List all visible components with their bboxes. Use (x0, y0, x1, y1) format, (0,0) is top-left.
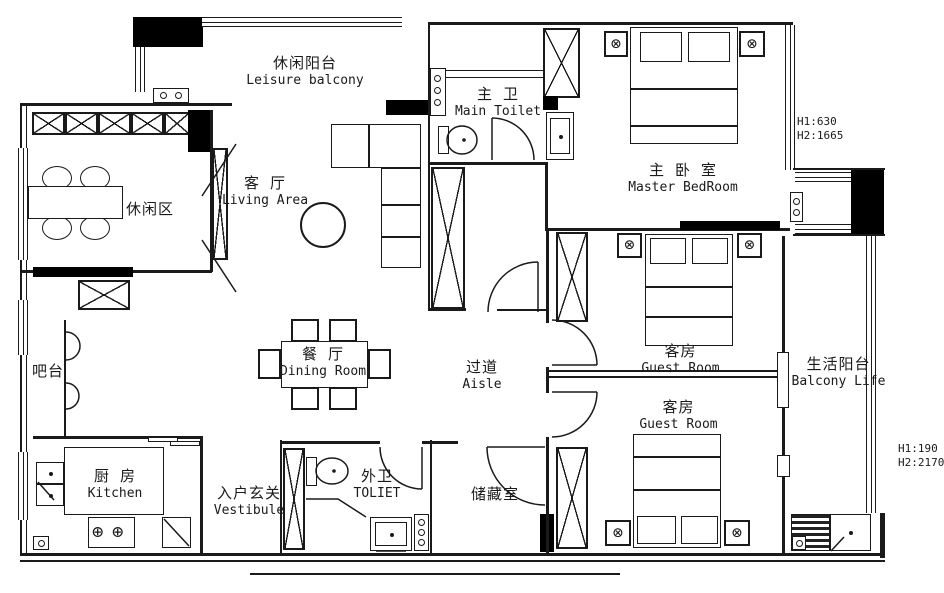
label-zh: 主 卫 (428, 83, 568, 104)
dining-chair (329, 319, 357, 342)
label-en: TOLIET (338, 486, 416, 501)
label-en: Guest Room (618, 361, 743, 376)
label-en: Main Toilet (428, 104, 568, 119)
nightstand-lamp-icon: ⊗ (724, 520, 750, 546)
label-zh: 客房 (618, 340, 743, 361)
sofa (381, 168, 421, 268)
room-label-leisure-area: 休闲区 (108, 198, 192, 219)
wall-block (33, 267, 133, 277)
shelf-column (414, 514, 429, 551)
label-en: Vestibule (203, 503, 295, 518)
pillow (688, 32, 730, 62)
pillow (681, 516, 718, 544)
shelf-dot (418, 529, 425, 536)
stove-burner-icon: ⊕ (112, 523, 123, 542)
cabinet (32, 112, 65, 135)
washbasin-inner (375, 522, 407, 546)
label-zh: 储藏室 (462, 483, 528, 504)
room-label-guest-room-lower: 客房 Guest Room (616, 396, 741, 432)
label-en: Kitchen (76, 486, 154, 501)
window (795, 172, 851, 182)
dining-chair (291, 387, 319, 410)
nightstand-lamp-icon: ⊗ (604, 31, 628, 57)
fixture-box (792, 536, 806, 550)
room-label-living-area: 客 厅 Living Area (205, 172, 325, 208)
label-en: Living Area (205, 193, 325, 208)
window (785, 25, 795, 170)
room-label-kitchen: 厨 房 Kitchen (76, 465, 154, 501)
wall (20, 553, 885, 556)
nightstand-lamp-icon: ⊗ (737, 233, 762, 258)
annotation-balcony-window: H1:190 H2:2170 (898, 442, 944, 471)
window (18, 148, 28, 260)
bed-line (633, 456, 721, 458)
wall (782, 236, 785, 352)
room-label-master-bedroom: 主 卧 室 Master BedRoom (608, 159, 758, 195)
sofa-line (381, 236, 421, 238)
wall (545, 162, 548, 230)
label-zh: 餐 厅 (262, 343, 384, 364)
window (18, 300, 28, 355)
room-label-storage: 储藏室 (462, 483, 528, 504)
pillow (692, 238, 728, 264)
fixture-dot (793, 209, 800, 216)
column-dot (434, 75, 441, 82)
planter-dot (160, 92, 167, 99)
washbasin-inner (550, 118, 570, 154)
wall-stub (777, 455, 790, 477)
label-en: Leisure balcony (225, 73, 385, 88)
nightstand-lamp-icon: ⊗ (739, 31, 765, 57)
wardrobe (431, 167, 465, 309)
balcony-rail-window (202, 17, 402, 27)
shelf-dot (418, 539, 425, 546)
window (135, 47, 145, 92)
cabinet (131, 112, 164, 135)
fixture-dot (796, 540, 803, 547)
sink-drain (49, 494, 53, 498)
nightstand-lamp-icon: ⊗ (605, 520, 631, 546)
label-zh: 吧台 (28, 360, 68, 381)
wall (20, 560, 885, 562)
basin-drain (559, 135, 563, 139)
label-zh: 入户玄关 (203, 482, 295, 503)
window (18, 452, 28, 520)
label-zh: 休闲区 (108, 198, 192, 219)
wall (546, 228, 549, 323)
toilet-tank (306, 457, 317, 486)
wall-block (680, 221, 780, 230)
shelf-line (446, 77, 543, 78)
room-label-aisle: 过道 Aisle (432, 356, 532, 392)
wall (428, 162, 547, 165)
dining-chair (329, 387, 357, 410)
planter-box (153, 88, 189, 103)
annotation-line: H1:190 (898, 442, 944, 456)
label-zh: 客房 (616, 396, 741, 417)
shelf-dot (418, 519, 425, 526)
wall (880, 513, 885, 558)
wall (546, 367, 549, 393)
chair (42, 216, 72, 240)
wall (428, 308, 466, 311)
stove-burner-icon: ⊕ (92, 523, 103, 542)
cabinet (65, 112, 98, 135)
wall-block (851, 170, 884, 235)
toilet-tank (438, 126, 449, 154)
wall-block (188, 110, 212, 152)
kitchen-sink (36, 484, 64, 506)
laundry-sink (830, 514, 871, 551)
label-en: Dining Room (262, 364, 384, 379)
folding-door (162, 517, 191, 548)
fixture-dot (793, 198, 800, 205)
room-label-guest-room-upper: 客房 Guest Room (618, 340, 743, 376)
wall (549, 376, 780, 378)
room-label-balcony-life: 生活阳台 Balcony Life (786, 353, 891, 389)
label-en: Balcony Life (786, 374, 891, 389)
annotation-line: H2:1665 (797, 129, 843, 143)
wall (497, 309, 546, 311)
room-label-main-toilet: 主 卫 Main Toilet (428, 83, 568, 119)
chair (80, 216, 110, 240)
cabinet (164, 112, 190, 135)
label-zh: 主 卧 室 (608, 159, 758, 180)
wardrobe (556, 447, 588, 549)
round-table (300, 202, 346, 248)
room-label-bar: 吧台 (28, 360, 68, 381)
fixture-dot (38, 540, 45, 547)
kitchen-sink (36, 462, 64, 484)
wall (782, 477, 785, 555)
label-zh: 过道 (432, 356, 532, 377)
wall (546, 437, 549, 555)
wall (430, 440, 432, 555)
sofa-line (381, 204, 421, 206)
bed-line (630, 125, 738, 127)
label-en: Master BedRoom (608, 180, 758, 195)
wall (545, 22, 793, 25)
window (795, 224, 851, 234)
pillow (650, 238, 686, 264)
annotation-line: H1:630 (797, 115, 843, 129)
sink-drain (49, 472, 53, 476)
wall (280, 441, 380, 444)
room-label-outer-toilet: 外卫 TOLIET (338, 465, 416, 501)
label-zh: 厨 房 (76, 465, 154, 486)
label-en: Aisle (432, 377, 532, 392)
planter-dot (175, 92, 182, 99)
sofa (331, 124, 421, 168)
label-zh: 生活阳台 (786, 353, 891, 374)
entry-step (250, 573, 620, 575)
pillow (637, 516, 676, 544)
sink-drain (849, 531, 853, 535)
annotation-master-window: H1:630 H2:1665 (797, 115, 843, 144)
room-label-leisure-balcony: 休闲阳台 Leisure balcony (225, 52, 385, 88)
wall-block (133, 17, 203, 47)
wall-block (386, 100, 428, 115)
label-zh: 客 厅 (205, 172, 325, 193)
cabinet (78, 280, 130, 310)
room-label-dining-room: 餐 厅 Dining Room (262, 343, 384, 379)
dining-chair (291, 319, 319, 342)
nightstand-lamp-icon: ⊗ (617, 233, 642, 258)
label-zh: 外卫 (338, 465, 416, 486)
floor-plan: ⊕ ⊕ ⊗ ⊗ (0, 0, 944, 593)
fixture-box (790, 192, 803, 222)
corner-fixture (33, 536, 49, 550)
label-zh: 休闲阳台 (225, 52, 385, 73)
bed-line (645, 316, 733, 318)
wall (432, 441, 458, 444)
room-label-vestibule: 入户玄关 Vestibule (203, 482, 295, 518)
sofa-line (368, 124, 370, 168)
wall (20, 103, 232, 106)
pillow (640, 32, 682, 62)
label-en: Guest Room (616, 417, 741, 432)
shelf-line (446, 70, 543, 71)
annotation-line: H2:2170 (898, 456, 944, 470)
bed-line (633, 489, 721, 491)
bed-line (645, 286, 733, 288)
bed-line (630, 88, 738, 90)
wall (428, 165, 430, 311)
cabinet (98, 112, 131, 135)
sliding-door (170, 441, 200, 446)
wardrobe (556, 232, 588, 322)
wall (782, 408, 785, 456)
wall (428, 22, 545, 25)
basin-drain (390, 533, 394, 537)
